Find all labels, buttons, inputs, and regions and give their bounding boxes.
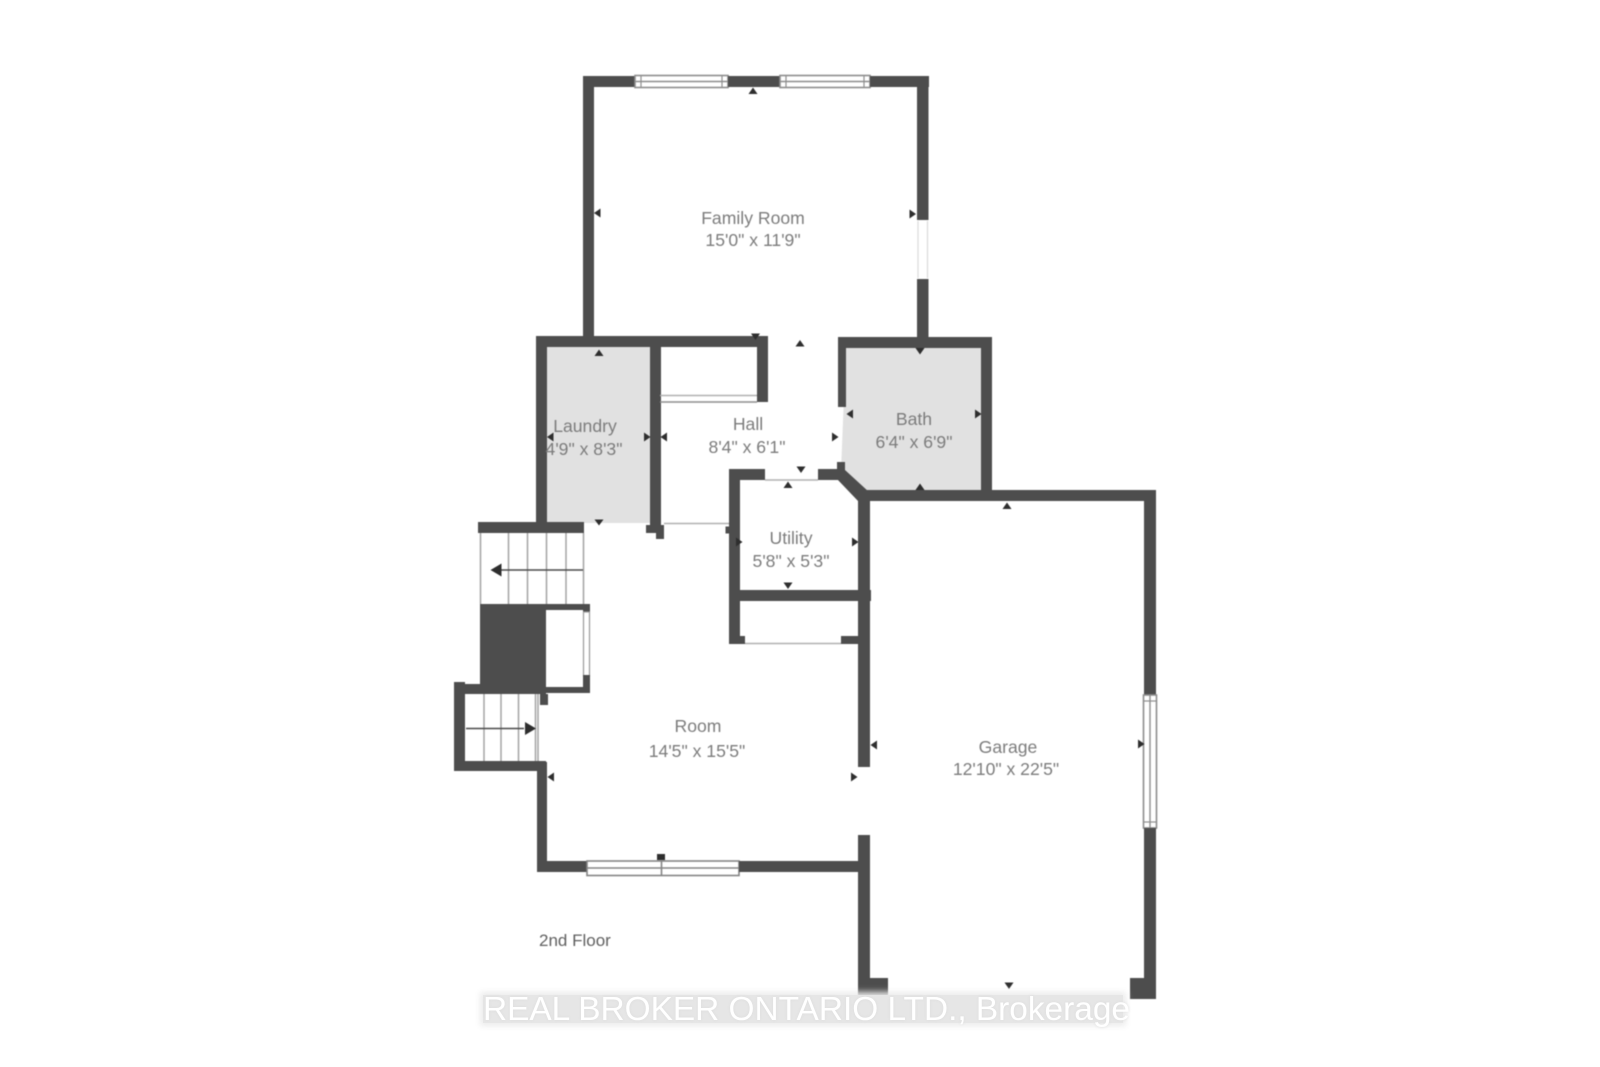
svg-text:Bath: Bath xyxy=(896,409,932,429)
svg-text:Garage: Garage xyxy=(979,737,1038,757)
svg-text:Room: Room xyxy=(675,716,722,736)
svg-text:15'0" x 11'9": 15'0" x 11'9" xyxy=(705,230,800,250)
svg-text:Laundry: Laundry xyxy=(553,416,617,436)
svg-text:5'8" x 5'3": 5'8" x 5'3" xyxy=(753,551,830,571)
svg-text:14'5" x 15'5": 14'5" x 15'5" xyxy=(649,741,746,761)
svg-text:2nd Floor: 2nd Floor xyxy=(539,931,611,950)
svg-text:6'4" x 6'9": 6'4" x 6'9" xyxy=(876,432,953,452)
svg-text:Hall: Hall xyxy=(733,414,763,434)
svg-text:8'4" x 6'1": 8'4" x 6'1" xyxy=(709,437,786,457)
svg-text:Utility: Utility xyxy=(769,528,812,548)
svg-text:12'10" x 22'5": 12'10" x 22'5" xyxy=(953,759,1059,779)
svg-text:Family Room: Family Room xyxy=(701,208,805,228)
svg-text:4'9" x 8'3": 4'9" x 8'3" xyxy=(546,439,623,459)
